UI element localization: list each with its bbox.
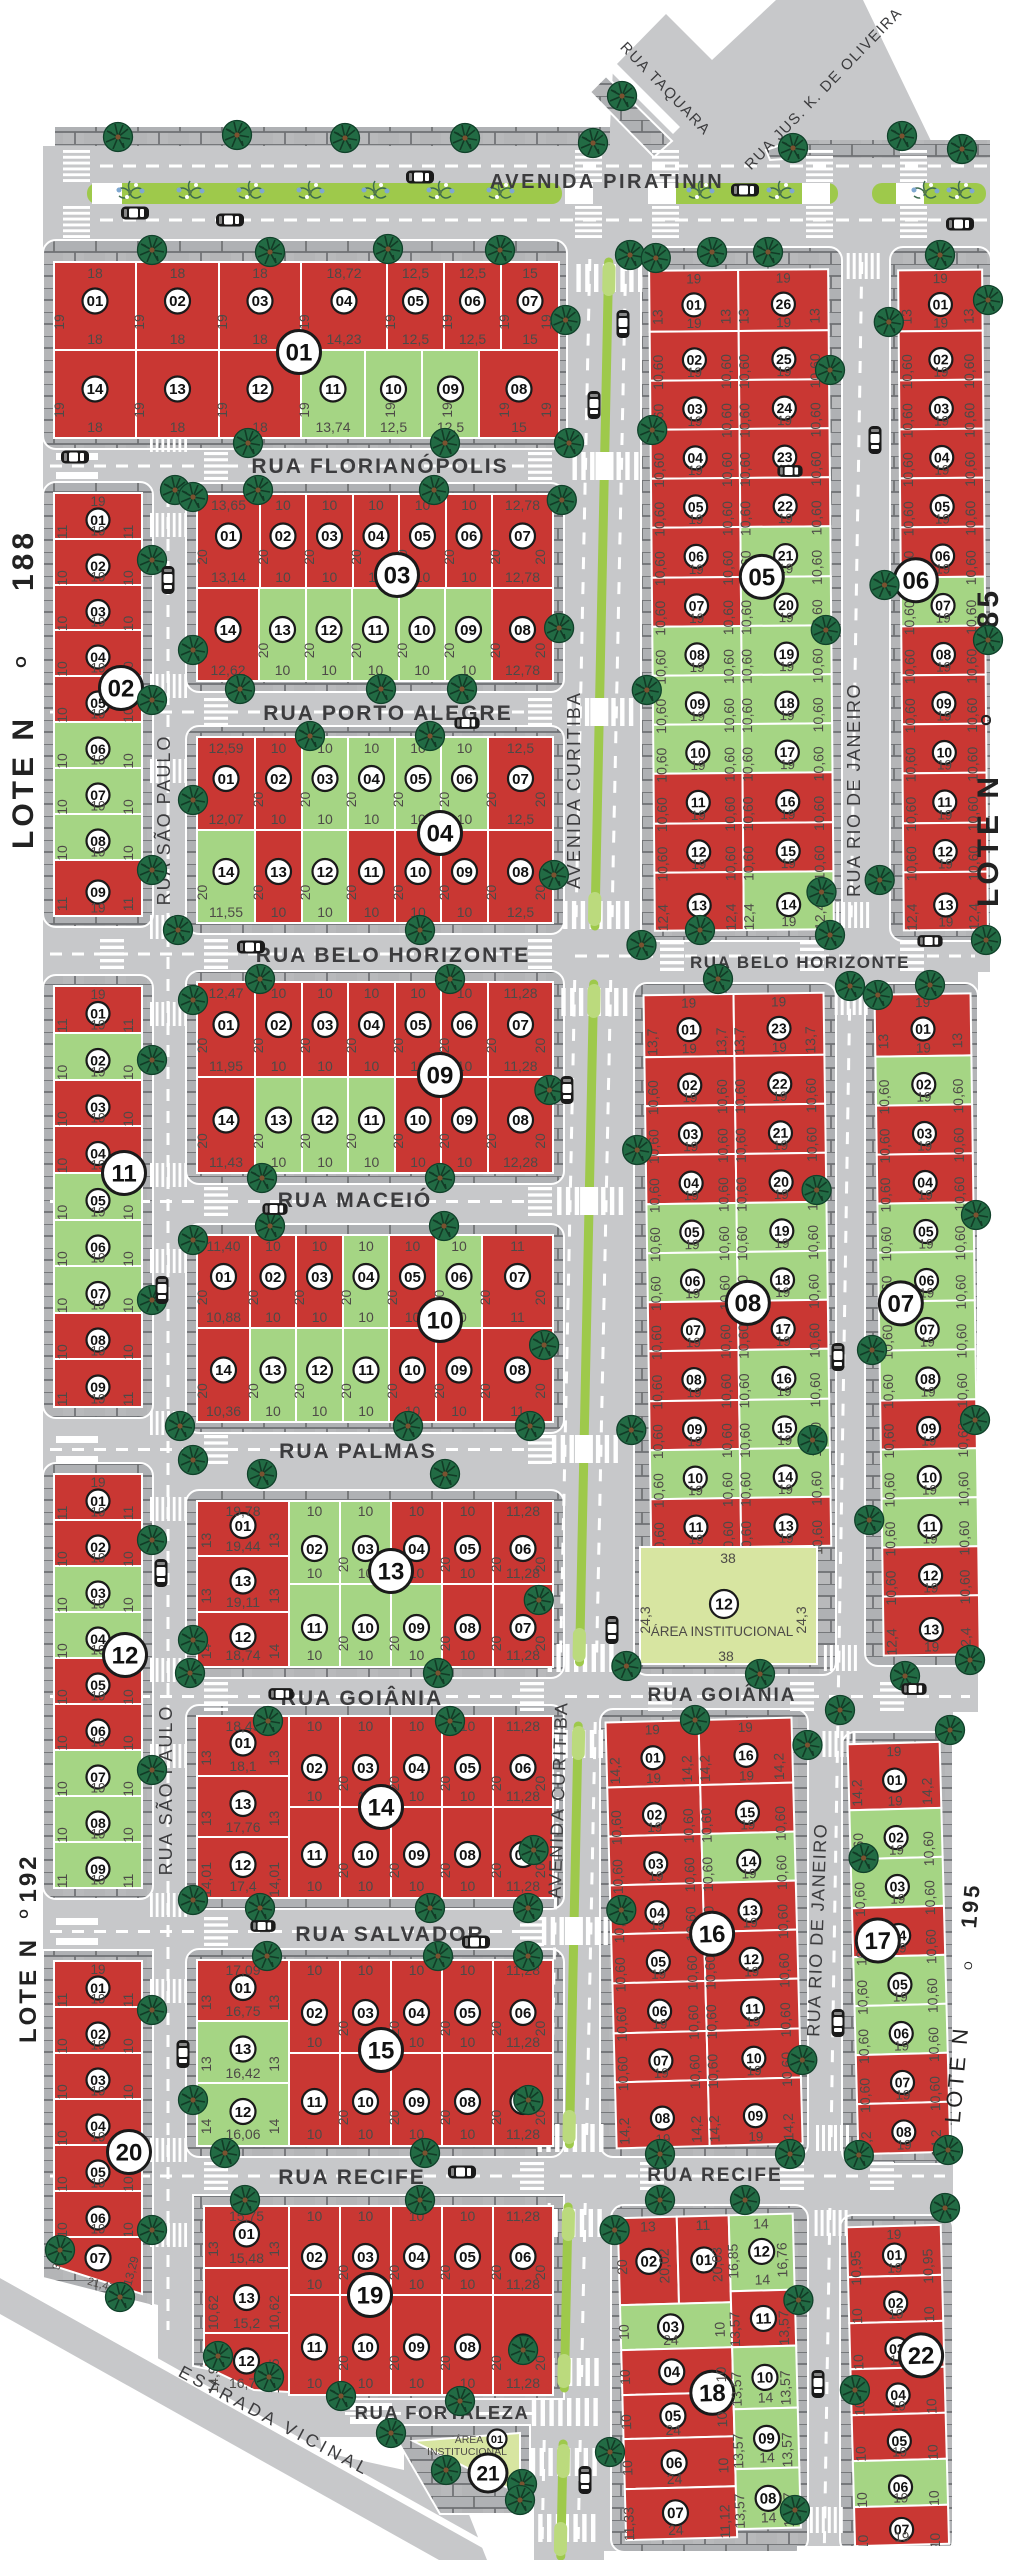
- svg-text:19: 19: [891, 2398, 906, 2413]
- svg-text:19: 19: [933, 271, 948, 286]
- svg-text:19: 19: [90, 661, 105, 676]
- svg-text:19: 19: [357, 2282, 384, 2309]
- svg-text:06: 06: [515, 1541, 532, 1558]
- svg-text:10,60: 10,60: [651, 501, 667, 536]
- svg-text:10: 10: [410, 864, 427, 881]
- svg-text:10: 10: [921, 2306, 937, 2322]
- svg-text:10,60: 10,60: [739, 747, 755, 782]
- svg-text:10: 10: [54, 616, 70, 632]
- svg-text:19: 19: [439, 402, 455, 418]
- svg-text:10: 10: [307, 1962, 323, 1978]
- svg-text:13: 13: [198, 1533, 214, 1549]
- svg-text:01: 01: [915, 1021, 931, 1037]
- svg-text:10,60: 10,60: [680, 1808, 697, 1844]
- svg-text:19: 19: [936, 708, 951, 723]
- svg-text:11: 11: [358, 1362, 374, 1379]
- svg-text:19: 19: [90, 1392, 105, 1407]
- svg-text:02: 02: [306, 2005, 323, 2022]
- svg-text:20: 20: [255, 549, 271, 565]
- svg-text:19: 19: [743, 1915, 758, 1930]
- svg-text:19: 19: [776, 1384, 791, 1399]
- svg-text:13,57: 13,57: [731, 2493, 748, 2529]
- svg-text:01: 01: [491, 2434, 503, 2446]
- svg-text:10,60: 10,60: [851, 1882, 868, 1918]
- svg-text:19: 19: [690, 709, 705, 724]
- svg-text:08: 08: [514, 622, 531, 639]
- svg-text:06: 06: [456, 1017, 473, 1034]
- svg-text:20: 20: [386, 1636, 402, 1652]
- svg-text:14: 14: [759, 2449, 775, 2465]
- svg-text:19: 19: [90, 1475, 105, 1490]
- svg-text:10: 10: [357, 2094, 374, 2111]
- svg-text:11,33: 11,33: [620, 2507, 637, 2542]
- svg-text:10,60: 10,60: [736, 354, 752, 389]
- svg-text:20: 20: [532, 1557, 548, 1573]
- svg-text:12: 12: [252, 381, 269, 398]
- svg-text:12: 12: [238, 2353, 255, 2370]
- svg-text:20: 20: [437, 1776, 453, 1792]
- svg-text:19: 19: [938, 856, 953, 871]
- svg-text:19: 19: [740, 1817, 755, 1832]
- svg-text:20: 20: [338, 1290, 354, 1306]
- svg-text:05: 05: [414, 528, 431, 545]
- svg-text:14: 14: [215, 1362, 232, 1379]
- svg-text:11: 11: [54, 525, 70, 540]
- svg-text:11,55: 11,55: [209, 904, 243, 920]
- svg-text:11: 11: [364, 864, 380, 881]
- svg-text:20: 20: [532, 1290, 548, 1306]
- svg-text:06: 06: [666, 2455, 683, 2472]
- svg-text:10: 10: [54, 1781, 70, 1797]
- svg-text:19: 19: [90, 2084, 105, 2099]
- svg-text:09: 09: [408, 2339, 425, 2356]
- svg-text:19: 19: [687, 316, 702, 331]
- svg-text:10: 10: [307, 1565, 323, 1581]
- svg-text:13,57: 13,57: [777, 2370, 794, 2406]
- svg-text:10,60: 10,60: [903, 846, 919, 881]
- svg-text:10: 10: [54, 1551, 70, 1567]
- svg-text:10,60: 10,60: [883, 1570, 899, 1605]
- svg-text:RUA FORTALEZA: RUA FORTALEZA: [355, 2402, 530, 2423]
- svg-text:10: 10: [358, 2126, 374, 2142]
- svg-text:12: 12: [321, 622, 338, 639]
- svg-text:10,60: 10,60: [924, 1978, 941, 2014]
- svg-text:19: 19: [681, 996, 696, 1011]
- svg-text:11,95: 11,95: [209, 1058, 243, 1074]
- svg-text:20: 20: [532, 1133, 548, 1149]
- svg-text:19: 19: [691, 808, 706, 823]
- svg-text:01: 01: [235, 1735, 252, 1752]
- svg-text:19: 19: [890, 1891, 905, 1906]
- svg-text:19: 19: [382, 314, 398, 330]
- svg-text:19: 19: [779, 610, 794, 625]
- svg-text:11,43: 11,43: [209, 1154, 243, 1170]
- svg-text:10,60: 10,60: [653, 747, 669, 782]
- svg-text:20: 20: [488, 2265, 504, 2281]
- svg-text:05: 05: [459, 2005, 476, 2022]
- svg-text:10: 10: [923, 2398, 939, 2414]
- svg-text:10,60: 10,60: [854, 1980, 871, 2016]
- svg-text:20: 20: [441, 643, 457, 659]
- svg-text:19,44: 19,44: [225, 1538, 260, 1554]
- svg-text:10,95: 10,95: [847, 2250, 864, 2286]
- svg-text:19: 19: [90, 494, 105, 509]
- svg-text:19: 19: [779, 708, 794, 723]
- svg-text:10: 10: [120, 1251, 136, 1267]
- svg-text:19: 19: [646, 1771, 661, 1786]
- svg-text:10: 10: [619, 2460, 635, 2476]
- svg-text:10: 10: [271, 1154, 287, 1170]
- svg-text:O: O: [963, 1961, 976, 1971]
- svg-text:10: 10: [414, 622, 431, 639]
- svg-text:10: 10: [120, 2038, 136, 2054]
- svg-text:19: 19: [920, 1334, 935, 1349]
- svg-text:10,60: 10,60: [650, 354, 666, 389]
- svg-text:10: 10: [358, 1403, 374, 1419]
- svg-text:04: 04: [663, 2364, 681, 2381]
- svg-text:20: 20: [441, 549, 457, 565]
- svg-text:13: 13: [960, 308, 976, 324]
- svg-text:10: 10: [457, 1154, 473, 1170]
- svg-text:10: 10: [54, 1735, 70, 1751]
- svg-text:09: 09: [456, 1112, 473, 1129]
- svg-text:20: 20: [532, 1636, 548, 1652]
- svg-text:19: 19: [933, 315, 948, 330]
- svg-text:10,60: 10,60: [810, 746, 826, 781]
- svg-text:O: O: [13, 656, 30, 668]
- svg-text:10,60: 10,60: [734, 1226, 750, 1261]
- svg-text:10,60: 10,60: [738, 649, 754, 684]
- svg-text:10,60: 10,60: [956, 1520, 972, 1555]
- svg-text:10,60: 10,60: [810, 697, 826, 732]
- svg-text:10: 10: [457, 904, 473, 920]
- svg-text:19: 19: [894, 2529, 909, 2544]
- svg-text:10,60: 10,60: [903, 796, 919, 831]
- svg-text:14,2: 14,2: [770, 1752, 787, 1780]
- svg-text:12: 12: [235, 1857, 252, 1874]
- svg-text:24: 24: [665, 2422, 681, 2438]
- svg-text:11,28: 11,28: [504, 1058, 538, 1074]
- svg-text:10,60: 10,60: [950, 1078, 966, 1113]
- svg-text:10,60: 10,60: [716, 1226, 732, 1261]
- svg-text:10,60: 10,60: [777, 2002, 794, 2038]
- svg-text:10,60: 10,60: [962, 451, 978, 486]
- svg-text:RUA BELO HORIZONTE: RUA BELO HORIZONTE: [256, 944, 530, 967]
- svg-text:16,42: 16,42: [225, 2065, 260, 2081]
- svg-text:10: 10: [120, 753, 136, 769]
- svg-text:19: 19: [918, 1187, 933, 1202]
- svg-text:20: 20: [335, 1776, 351, 1792]
- svg-text:10: 10: [120, 799, 136, 815]
- svg-text:10: 10: [317, 904, 333, 920]
- svg-text:20: 20: [335, 2355, 351, 2371]
- svg-text:10: 10: [322, 497, 338, 513]
- svg-text:20: 20: [245, 1383, 261, 1399]
- svg-text:20: 20: [390, 885, 406, 901]
- svg-text:14: 14: [198, 2119, 214, 2135]
- svg-text:20: 20: [335, 2265, 351, 2281]
- svg-text:19: 19: [746, 2063, 761, 2078]
- svg-text:09: 09: [747, 2107, 763, 2123]
- svg-text:10,60: 10,60: [899, 354, 915, 389]
- svg-text:10,60: 10,60: [719, 1423, 735, 1458]
- svg-text:03: 03: [357, 2249, 374, 2266]
- svg-text:10: 10: [427, 1307, 454, 1334]
- svg-text:188: 188: [7, 529, 40, 591]
- svg-text:10: 10: [357, 2339, 374, 2356]
- svg-text:05: 05: [410, 771, 427, 788]
- svg-text:18: 18: [170, 419, 186, 435]
- svg-text:10: 10: [265, 1309, 281, 1325]
- svg-text:11: 11: [510, 1238, 525, 1254]
- svg-text:13: 13: [717, 309, 733, 325]
- svg-text:10,60: 10,60: [805, 1225, 821, 1260]
- svg-text:19: 19: [90, 570, 105, 585]
- svg-text:19: 19: [936, 610, 951, 625]
- svg-text:11: 11: [120, 1392, 136, 1407]
- svg-text:10,60: 10,60: [714, 1079, 730, 1114]
- svg-text:07: 07: [509, 1269, 526, 1286]
- svg-text:10,60: 10,60: [880, 1374, 896, 1409]
- svg-text:19: 19: [933, 364, 948, 379]
- svg-text:19: 19: [538, 402, 554, 418]
- svg-text:19: 19: [920, 1384, 935, 1399]
- svg-text:10: 10: [409, 1647, 425, 1663]
- svg-text:19: 19: [648, 1869, 663, 1884]
- svg-text:05: 05: [459, 2249, 476, 2266]
- svg-text:14: 14: [757, 2389, 773, 2405]
- svg-text:19: 19: [90, 1298, 105, 1313]
- svg-text:20: 20: [343, 885, 359, 901]
- svg-text:20: 20: [487, 549, 503, 565]
- svg-text:10,60: 10,60: [721, 698, 737, 733]
- svg-text:12,07: 12,07: [208, 811, 243, 827]
- svg-text:19: 19: [938, 914, 953, 929]
- svg-text:10,60: 10,60: [650, 1473, 666, 1508]
- svg-text:19: 19: [779, 1531, 794, 1546]
- svg-text:11: 11: [120, 1018, 136, 1033]
- svg-text:10: 10: [322, 569, 338, 585]
- svg-text:14,2: 14,2: [678, 1755, 695, 1783]
- svg-text:10,60: 10,60: [901, 649, 917, 684]
- svg-text:10: 10: [265, 1403, 281, 1419]
- svg-text:10,60: 10,60: [961, 402, 977, 437]
- svg-text:20: 20: [335, 1557, 351, 1573]
- svg-text:11,28: 11,28: [506, 2208, 540, 2224]
- svg-text:10: 10: [321, 662, 337, 678]
- svg-text:10: 10: [926, 2490, 942, 2506]
- svg-text:20: 20: [477, 1383, 493, 1399]
- svg-text:10,60: 10,60: [876, 1128, 892, 1163]
- svg-text:19: 19: [90, 1205, 105, 1220]
- svg-text:07: 07: [522, 293, 539, 310]
- svg-text:10,60: 10,60: [651, 452, 667, 487]
- svg-text:13,57: 13,57: [726, 2311, 743, 2347]
- svg-text:20: 20: [301, 549, 317, 565]
- svg-text:10,60: 10,60: [806, 1323, 822, 1358]
- svg-text:10,60: 10,60: [714, 1128, 730, 1163]
- svg-text:19: 19: [685, 1286, 700, 1301]
- svg-text:10,60: 10,60: [773, 1855, 790, 1891]
- svg-text:10: 10: [317, 811, 333, 827]
- svg-text:18: 18: [252, 331, 268, 347]
- svg-text:10: 10: [616, 2324, 632, 2340]
- svg-text:06: 06: [515, 2249, 532, 2266]
- svg-text:19: 19: [776, 271, 791, 286]
- svg-text:18: 18: [252, 265, 268, 281]
- svg-text:14: 14: [266, 2119, 282, 2135]
- svg-text:13: 13: [649, 309, 665, 325]
- svg-text:19: 19: [682, 1090, 697, 1105]
- svg-text:13: 13: [235, 1573, 252, 1590]
- svg-text:20: 20: [488, 1776, 504, 1792]
- svg-text:19: 19: [773, 1138, 788, 1153]
- svg-text:10: 10: [54, 1597, 70, 1613]
- svg-text:20: 20: [291, 1383, 307, 1399]
- svg-text:19: 19: [683, 1139, 698, 1154]
- svg-text:10: 10: [54, 570, 70, 586]
- svg-text:10: 10: [54, 1251, 70, 1267]
- svg-text:10,60: 10,60: [685, 2004, 702, 2040]
- svg-text:11,40: 11,40: [207, 1238, 241, 1254]
- svg-text:10: 10: [409, 2276, 425, 2292]
- svg-text:10: 10: [271, 985, 287, 1001]
- svg-text:10: 10: [358, 1962, 374, 1978]
- svg-text:10,60: 10,60: [722, 846, 738, 881]
- svg-text:10: 10: [358, 1503, 374, 1519]
- svg-text:20: 20: [386, 1863, 402, 1879]
- svg-text:20: 20: [488, 2021, 504, 2037]
- svg-text:10: 10: [852, 2446, 868, 2462]
- svg-text:195: 195: [956, 1881, 985, 1929]
- svg-text:14: 14: [87, 381, 104, 398]
- svg-text:19,78: 19,78: [225, 1503, 260, 1519]
- svg-text:15,48: 15,48: [229, 2250, 264, 2266]
- svg-text:19: 19: [738, 1720, 753, 1735]
- svg-text:11,28: 11,28: [506, 2126, 540, 2142]
- svg-text:10: 10: [307, 2126, 323, 2142]
- svg-text:19: 19: [686, 1335, 701, 1350]
- svg-text:20: 20: [436, 792, 452, 808]
- svg-text:13,7: 13,7: [802, 1026, 818, 1054]
- svg-text:10: 10: [850, 2354, 866, 2370]
- svg-text:10,60: 10,60: [699, 1856, 716, 1892]
- svg-text:23: 23: [771, 1020, 787, 1036]
- svg-text:11: 11: [368, 622, 384, 639]
- svg-text:05: 05: [410, 1017, 427, 1034]
- svg-text:20: 20: [116, 2139, 143, 2166]
- svg-text:19: 19: [916, 1089, 931, 1104]
- svg-text:10: 10: [451, 1403, 467, 1419]
- svg-text:13,57: 13,57: [778, 2432, 795, 2468]
- svg-text:10,60: 10,60: [803, 1078, 819, 1113]
- svg-text:10: 10: [54, 1158, 70, 1174]
- svg-text:14: 14: [781, 896, 797, 912]
- svg-text:20: 20: [437, 1863, 453, 1879]
- svg-text:19: 19: [776, 315, 791, 330]
- svg-text:10: 10: [460, 1878, 476, 1894]
- svg-text:20: 20: [343, 792, 359, 808]
- svg-text:10,60: 10,60: [954, 1373, 970, 1408]
- svg-text:10,60: 10,60: [653, 698, 669, 733]
- svg-text:19: 19: [690, 758, 705, 773]
- svg-text:20: 20: [532, 549, 548, 565]
- svg-text:10: 10: [271, 904, 287, 920]
- svg-text:19: 19: [686, 271, 701, 286]
- svg-text:RUA FLORIANÓPOLIS: RUA FLORIANÓPOLIS: [251, 454, 508, 478]
- svg-text:12,4: 12,4: [883, 1628, 899, 1656]
- svg-text:19: 19: [90, 1551, 105, 1566]
- svg-text:10,60: 10,60: [720, 600, 736, 635]
- svg-text:13: 13: [235, 1796, 252, 1813]
- svg-text:02: 02: [306, 1760, 323, 1777]
- svg-text:10,60: 10,60: [698, 1807, 715, 1843]
- svg-text:19: 19: [90, 1597, 105, 1612]
- svg-text:12: 12: [235, 2104, 252, 2121]
- svg-text:14,01: 14,01: [266, 1862, 282, 1897]
- svg-text:20: 20: [390, 792, 406, 808]
- svg-text:19: 19: [689, 611, 704, 626]
- svg-text:LOTE N: LOTE N: [15, 1937, 42, 2043]
- svg-text:20: 20: [532, 792, 548, 808]
- svg-text:10: 10: [317, 1058, 333, 1074]
- svg-text:19: 19: [887, 2260, 902, 2275]
- svg-text:01: 01: [686, 297, 702, 313]
- svg-text:11: 11: [111, 1160, 136, 1187]
- svg-text:01: 01: [235, 1980, 252, 1997]
- svg-text:19: 19: [684, 1237, 699, 1252]
- svg-text:20: 20: [436, 885, 452, 901]
- svg-text:10,60: 10,60: [737, 1423, 753, 1458]
- svg-text:10,60: 10,60: [732, 1128, 748, 1163]
- svg-text:10: 10: [271, 1058, 287, 1074]
- svg-text:02: 02: [265, 1269, 282, 1286]
- svg-text:13: 13: [274, 622, 291, 639]
- svg-text:19: 19: [90, 2176, 105, 2191]
- svg-text:24: 24: [668, 2522, 684, 2538]
- svg-text:10,60: 10,60: [715, 1177, 731, 1212]
- svg-text:10: 10: [364, 811, 380, 827]
- svg-text:19: 19: [51, 402, 67, 418]
- svg-text:10: 10: [120, 616, 136, 632]
- svg-text:19: 19: [296, 314, 312, 330]
- svg-text:20: 20: [245, 1290, 261, 1306]
- svg-text:12,5: 12,5: [459, 331, 486, 347]
- svg-text:10,60: 10,60: [645, 1080, 661, 1115]
- svg-text:13,57: 13,57: [729, 2433, 746, 2469]
- svg-text:10: 10: [405, 1238, 421, 1254]
- svg-text:13: 13: [266, 1533, 282, 1549]
- svg-text:13: 13: [938, 897, 954, 913]
- svg-text:LOTE N: LOTE N: [7, 715, 40, 849]
- svg-text:19: 19: [776, 1334, 791, 1349]
- svg-text:15: 15: [511, 419, 527, 435]
- svg-text:13: 13: [266, 2056, 282, 2072]
- svg-text:10,60: 10,60: [609, 1859, 626, 1895]
- svg-text:10,60: 10,60: [739, 698, 755, 733]
- svg-text:19: 19: [923, 1531, 938, 1546]
- svg-text:10,60: 10,60: [720, 649, 736, 684]
- svg-text:15: 15: [368, 2037, 395, 2064]
- svg-text:20,03: 20,03: [709, 2247, 726, 2283]
- svg-text:10,60: 10,60: [952, 1225, 968, 1260]
- svg-text:38: 38: [720, 1550, 736, 1566]
- svg-text:19: 19: [90, 2038, 105, 2053]
- svg-text:19: 19: [90, 799, 105, 814]
- svg-text:12,5: 12,5: [507, 740, 534, 756]
- svg-text:18: 18: [170, 265, 186, 281]
- svg-text:14,2: 14,2: [919, 1777, 936, 1805]
